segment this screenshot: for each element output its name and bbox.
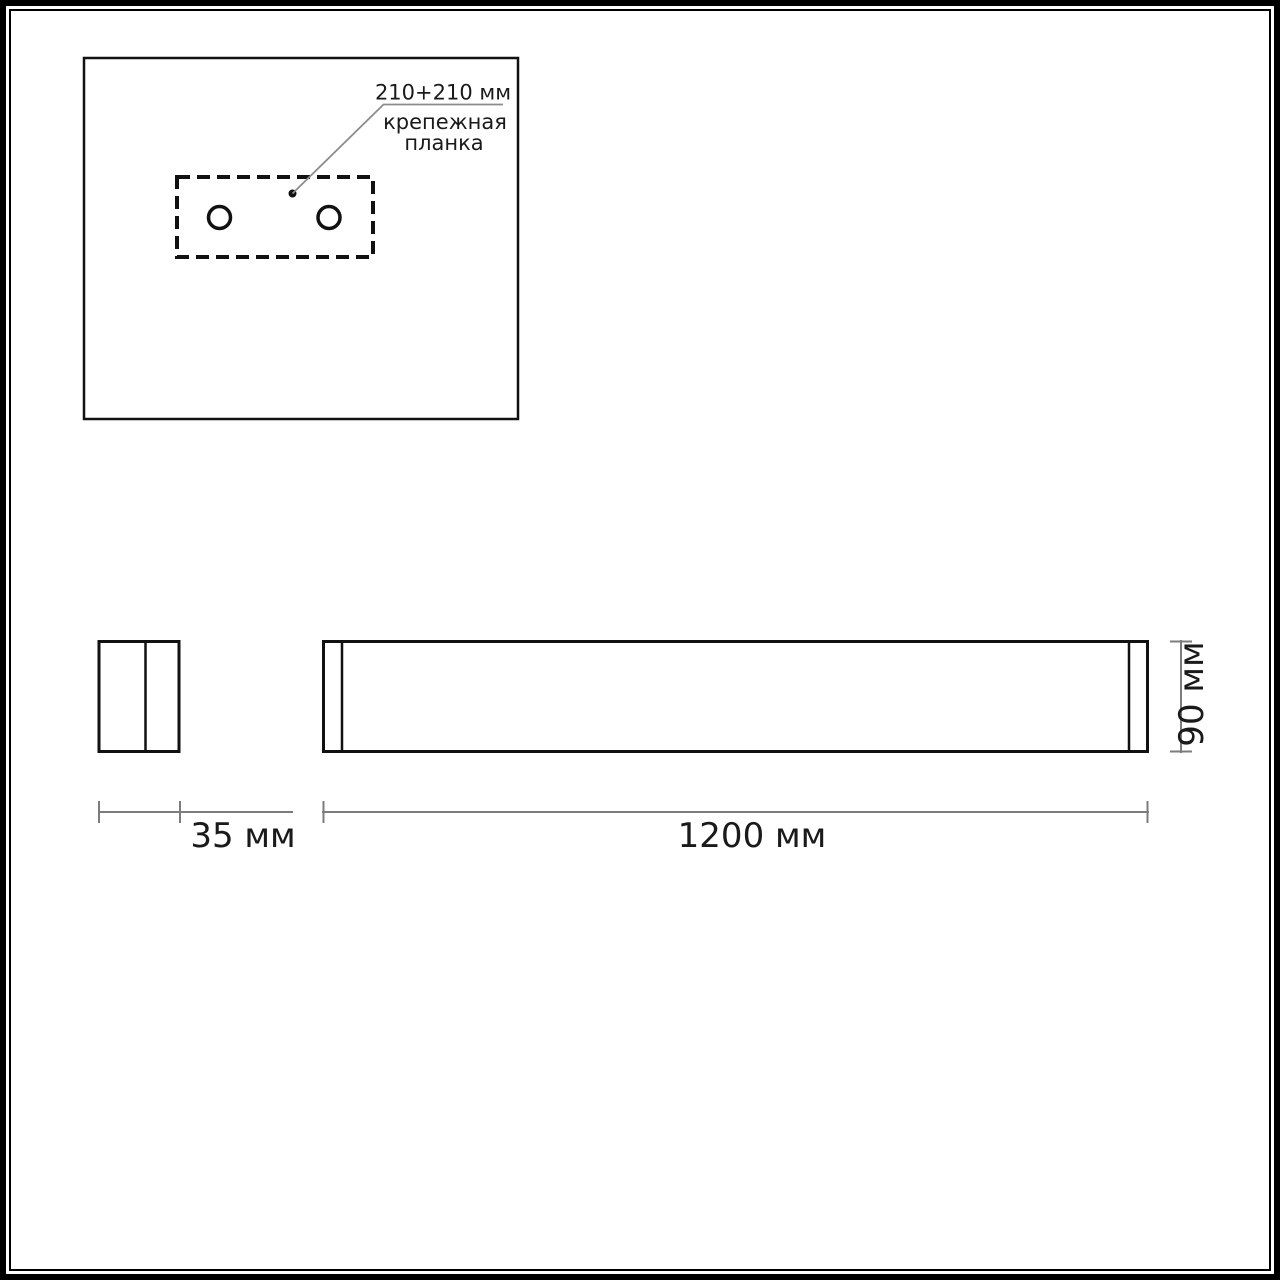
front-view-outline [324, 642, 1148, 752]
length-dimension: 1200 мм [322, 801, 1149, 856]
length-dimension-label: 1200 мм [678, 816, 827, 856]
dimension-drawing-page: 210+210 мм крепежная планка 35 мм 1200 м… [0, 0, 1280, 1280]
height-dimension: 90 мм [1170, 640, 1212, 753]
depth-dimension-label: 35 мм [190, 816, 295, 856]
technical-drawing-canvas: 210+210 мм крепежная планка 35 мм 1200 м… [0, 0, 1280, 1280]
height-dimension-label: 90 мм [1172, 641, 1212, 746]
mounting-spacing-label: 210+210 мм [375, 81, 511, 105]
depth-dimension: 35 мм [98, 801, 296, 856]
side-view-outline [99, 642, 179, 752]
mounting-plate-caption-line2: планка [404, 131, 483, 155]
